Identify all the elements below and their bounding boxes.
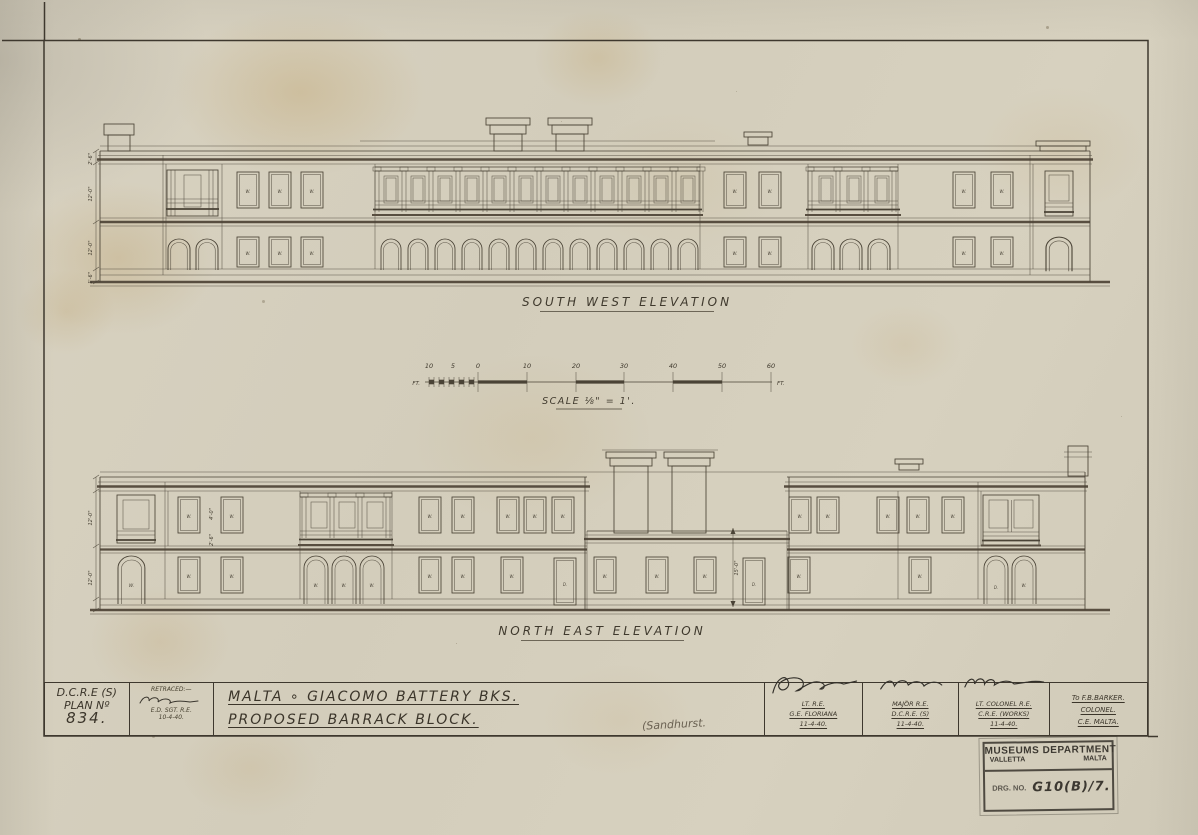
south-west-elevation-drawing: 2'-6" 12'-0" 12'-0" 1'-6" SOUTH WEST ELE… <box>88 118 1110 312</box>
svg-text:15'-0": 15'-0" <box>734 560 740 575</box>
org-label: D.C.R.E (S) <box>45 686 129 699</box>
scale-caption: SCALE ⅛" = 1'. <box>542 396 636 407</box>
sw-left-veranda-bay <box>166 170 219 216</box>
svg-text:0: 0 <box>476 362 480 370</box>
ne-chimneys <box>602 446 1092 533</box>
ne-elevation-title: NORTH EAST ELEVATION <box>498 624 705 638</box>
stamp-drg-label: DRG. NO. <box>992 783 1026 792</box>
sw-dimension-chain: 2'-6" 12'-0" 12'-0" 1'-6" <box>88 149 99 284</box>
stamp-city: VALLETTA <box>990 756 1026 763</box>
svg-text:12'-0": 12'-0" <box>88 240 94 255</box>
north-east-elevation-drawing: 12'-0" 12'-0" 4'-0" 2'-6" 15'-0" NORTH E… <box>88 446 1110 641</box>
signature-box-1: LT. R.E. G.E. FLORIANA 11-4-40. <box>765 683 862 735</box>
svg-text:40: 40 <box>669 362 677 370</box>
signature-scribble <box>765 671 861 699</box>
signature-scribble <box>959 671 1049 699</box>
svg-text:50: 50 <box>718 362 726 370</box>
sw-elevation-title: SOUTH WEST ELEVATION <box>522 295 732 309</box>
signature-box-2: MAJOR R.E. D.C.R.E. (S) 11-4-40. <box>863 683 959 735</box>
retraced-date: 10-4-40. <box>130 714 214 721</box>
svg-text:12'-0": 12'-0" <box>88 570 94 585</box>
drawing-sheet: W. W. W. D. <box>0 0 1198 835</box>
svg-text:FT.: FT. <box>777 381 785 387</box>
stamp-country: MALTA <box>1083 755 1107 762</box>
svg-text:12'-0": 12'-0" <box>88 186 94 201</box>
retraced-signature-scribble <box>136 693 206 707</box>
svg-text:5: 5 <box>451 362 455 370</box>
svg-text:12'-0": 12'-0" <box>88 510 94 525</box>
sw-right-veranda-bay <box>805 167 901 270</box>
svg-text:1'-6": 1'-6" <box>88 272 94 284</box>
drawing-title-line1: MALTA ∘ GIACOMO BATTERY BKS. <box>228 686 764 709</box>
svg-text:4'-0": 4'-0" <box>209 508 215 520</box>
sw-central-colonnade <box>372 167 705 215</box>
signature-box-4: To F.B.BARKER. COLONEL. C.E. MALTA. <box>1050 683 1147 735</box>
svg-text:10: 10 <box>523 362 531 370</box>
museums-department-stamp: MUSEUMS DEPARTMENT VALLETTA MALTA DRG. N… <box>983 740 1115 812</box>
retraced-heading: RETRACED:— <box>130 686 214 693</box>
plan-number: 834. <box>45 712 129 725</box>
svg-text:30: 30 <box>620 362 628 370</box>
ne-upper-windows <box>178 497 964 533</box>
svg-text:2'-6": 2'-6" <box>88 153 94 165</box>
signature-box-3: LT. COLONEL R.E. C.R.E. (WORKS) 11-4-40. <box>959 683 1050 735</box>
retraced-rank: E.D. SGT. R.E. <box>130 707 214 714</box>
svg-text:20: 20 <box>572 362 580 370</box>
drawing-title-box: MALTA ∘ GIACOMO BATTERY BKS. PROPOSED BA… <box>214 683 765 735</box>
title-block: D.C.R.E (S) PLAN Nº 834. RETRACED:— E.D.… <box>44 682 1148 736</box>
svg-text:60: 60 <box>767 362 775 370</box>
ne-dimension-chain: 12'-0" 12'-0" 4'-0" 2'-6" 15'-0" <box>88 475 740 612</box>
signature-scribble <box>863 671 958 699</box>
stamp-drg-number: G10(B)/7. <box>1032 779 1110 795</box>
ne-lower-openings <box>178 557 931 605</box>
svg-text:FT.: FT. <box>412 381 420 387</box>
sw-arcade <box>381 239 698 270</box>
retraced-box: RETRACED:— E.D. SGT. R.E. 10-4-40. <box>130 683 215 735</box>
scale-bar: 10 5 0 10 20 30 40 50 60 FT. FT. SCALE ⅛… <box>412 362 784 409</box>
sw-windows <box>237 172 1013 267</box>
plan-number-box: D.C.R.E (S) PLAN Nº 834. <box>45 683 130 735</box>
svg-text:2'-6": 2'-6" <box>209 534 215 546</box>
svg-text:10: 10 <box>425 362 433 370</box>
